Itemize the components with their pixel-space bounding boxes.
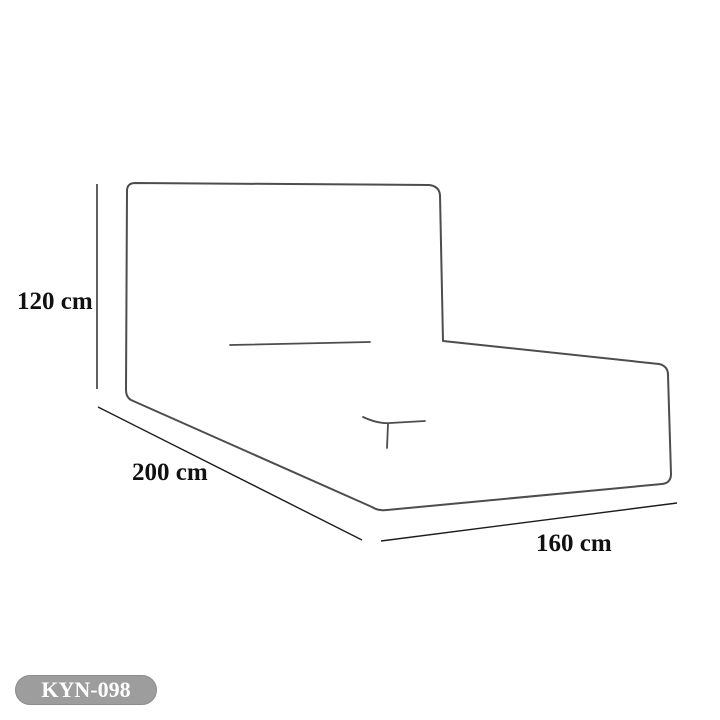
diagram-canvas: 120 cm 200 cm 160 cm KYN-098 bbox=[0, 0, 720, 720]
product-code-text: KYN-098 bbox=[41, 679, 130, 701]
length-dimension-label: 200 cm bbox=[132, 460, 208, 485]
height-dimension-label: 120 cm bbox=[17, 289, 93, 314]
width-dimension-label: 160 cm bbox=[536, 531, 612, 556]
product-code-badge: KYN-098 bbox=[15, 675, 157, 705]
blanket-fold-line bbox=[363, 417, 425, 423]
mattress-seam-line bbox=[230, 342, 370, 345]
width-dimension-line bbox=[381, 503, 677, 541]
blanket-fold-drop-line bbox=[387, 424, 388, 448]
bed-line-drawing bbox=[0, 0, 720, 720]
